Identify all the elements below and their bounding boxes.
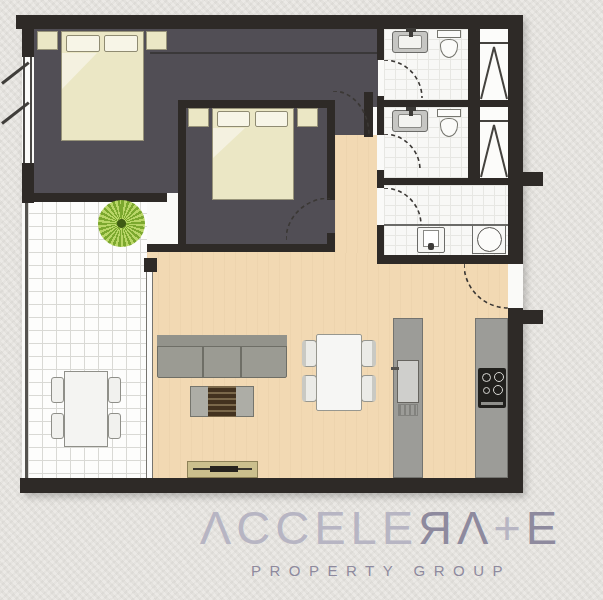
- oven-handle: [481, 402, 503, 405]
- bath2-toilet-tank: [437, 109, 461, 117]
- door-arc-bedroom2: [286, 198, 332, 242]
- wardrobe-triangle-icon: [480, 124, 508, 178]
- burner-icon: [482, 373, 491, 382]
- brand-tagline: PROPERTY GROUP: [185, 562, 577, 579]
- dining-chair: [302, 375, 317, 402]
- balcony-sliding-door: [146, 272, 153, 478]
- wall-bedroom1-bottom: [27, 193, 167, 202]
- bath1-toilet-tank: [437, 30, 461, 38]
- brand-segment: E: [526, 501, 562, 554]
- sofa-back: [157, 335, 287, 347]
- wall-bath-left-3: [377, 170, 384, 188]
- wall-protrusion-2: [523, 310, 543, 324]
- plant-icon: [98, 200, 145, 247]
- outdoor-chair: [51, 413, 64, 439]
- bedroom1-nightstand: [37, 31, 58, 50]
- wall-bath-left-1: [377, 29, 384, 60]
- wall-top: [16, 15, 523, 29]
- brand-segment: ЯΛ: [418, 501, 493, 554]
- wall-balcony-stub: [144, 258, 157, 272]
- wall-protrusion-1: [523, 172, 543, 186]
- tv-icon: [210, 466, 238, 472]
- wall-bath-left-4: [377, 225, 384, 255]
- wall-laundry-bottom: [377, 255, 508, 264]
- door-arc-robe-lobby: [333, 91, 371, 137]
- brand-segment: +: [493, 501, 525, 554]
- wall-bath1-bath2: [384, 100, 508, 107]
- burner-icon: [494, 372, 504, 382]
- wall-bedroom2-top: [178, 100, 335, 108]
- bath2-tap-stem: [409, 110, 413, 116]
- laundry-tap-icon: [428, 243, 434, 250]
- door-arc-bathroom1: [384, 60, 424, 100]
- wall-robe-left: [468, 29, 480, 178]
- door-arc-entry: [464, 264, 510, 310]
- bedroom2-nightstand: [188, 108, 209, 127]
- door-arc-laundry: [384, 188, 423, 227]
- wardrobe1-shelf: [480, 29, 508, 44]
- outdoor-table: [64, 371, 108, 447]
- wall-bath2-laundry: [384, 178, 508, 185]
- wall-left-upper: [22, 15, 34, 57]
- pillow: [255, 111, 288, 127]
- coffee-table-tray: [208, 386, 236, 417]
- wardrobe1: [480, 29, 508, 100]
- bath1-sink-basin: [398, 35, 422, 49]
- door-arc-bathroom2: [384, 134, 422, 172]
- bath1-tap-stem: [409, 31, 413, 37]
- bedroom1-nightstand: [146, 31, 167, 50]
- kitchen-dishwasher-hatch: [398, 404, 418, 416]
- dining-chair: [361, 375, 376, 402]
- bedroom1-shelf-line: [150, 52, 377, 54]
- hallway-floor: [335, 135, 377, 253]
- bedroom1-window: [23, 57, 32, 163]
- wardrobe-triangle-icon: [480, 46, 508, 100]
- wardrobe2: [480, 107, 508, 178]
- kitchen-tap-icon: [391, 367, 399, 370]
- pillow: [66, 35, 100, 52]
- wall-right-upper: [508, 15, 523, 264]
- wall-bedroom2-left: [178, 100, 186, 252]
- pillow: [104, 35, 138, 52]
- wall-bath-left-2: [377, 96, 384, 135]
- sofa-cushion-divider: [240, 347, 242, 378]
- bath2-sink-basin: [398, 114, 422, 128]
- floor-plan-page: ΛCCELEЯΛ+E PROPERTY GROUP: [0, 0, 603, 600]
- outdoor-chair: [108, 377, 121, 403]
- dining-table: [316, 334, 362, 411]
- brand-wordmark: ΛCCELEЯΛ+E: [185, 503, 577, 552]
- brand-segment: ΛCCELE: [200, 501, 418, 554]
- burner-icon: [493, 385, 503, 395]
- wardrobe2-shelf: [480, 107, 508, 122]
- dining-chair: [302, 340, 317, 367]
- outdoor-chair: [108, 413, 121, 439]
- burner-icon: [483, 387, 490, 394]
- brand-logo: ΛCCELEЯΛ+E PROPERTY GROUP: [185, 503, 577, 579]
- wall-bottom: [20, 478, 523, 493]
- pillow: [217, 111, 250, 127]
- kitchen-sink: [397, 360, 419, 403]
- wall-right-lower: [508, 308, 523, 493]
- outdoor-chair: [51, 377, 64, 403]
- wall-bedroom2-bottom: [147, 244, 335, 252]
- sofa-cushion-divider: [202, 347, 204, 378]
- dining-chair: [361, 340, 376, 367]
- washing-machine-drum-icon: [477, 227, 502, 252]
- bedroom2-nightstand: [297, 108, 318, 127]
